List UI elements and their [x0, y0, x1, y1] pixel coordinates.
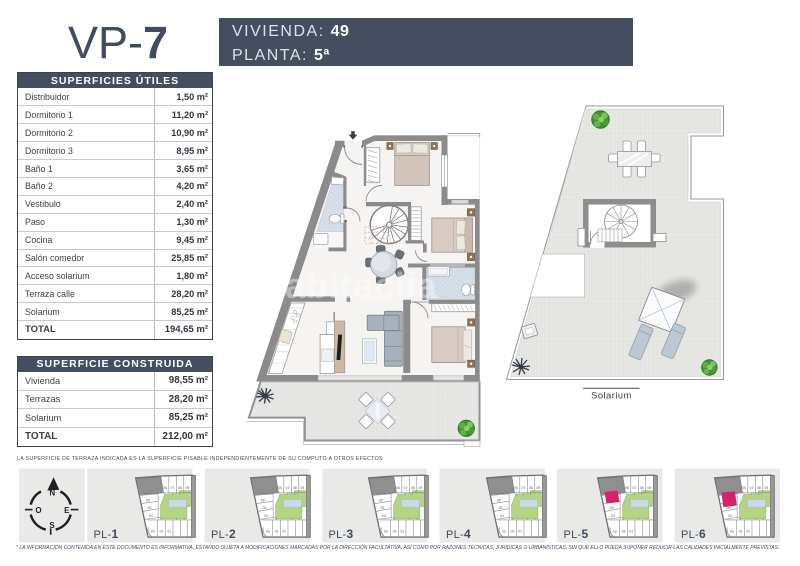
svg-text:PL-4: PL-4	[446, 527, 471, 541]
svg-text:PL-5: PL-5	[564, 527, 589, 541]
svg-text:PL-2: PL-2	[211, 527, 236, 541]
svg-text:PL-6: PL-6	[681, 527, 706, 541]
svg-text:PL-1: PL-1	[94, 527, 119, 541]
svg-text:S: S	[49, 521, 55, 530]
svg-text:Solarium: Solarium	[591, 390, 632, 400]
svg-text:E: E	[64, 506, 70, 515]
svg-text:habitaclia: habitaclia	[262, 265, 438, 306]
svg-text:N: N	[49, 489, 55, 498]
svg-text:PL-3: PL-3	[329, 527, 354, 541]
svg-text:O: O	[35, 506, 41, 515]
